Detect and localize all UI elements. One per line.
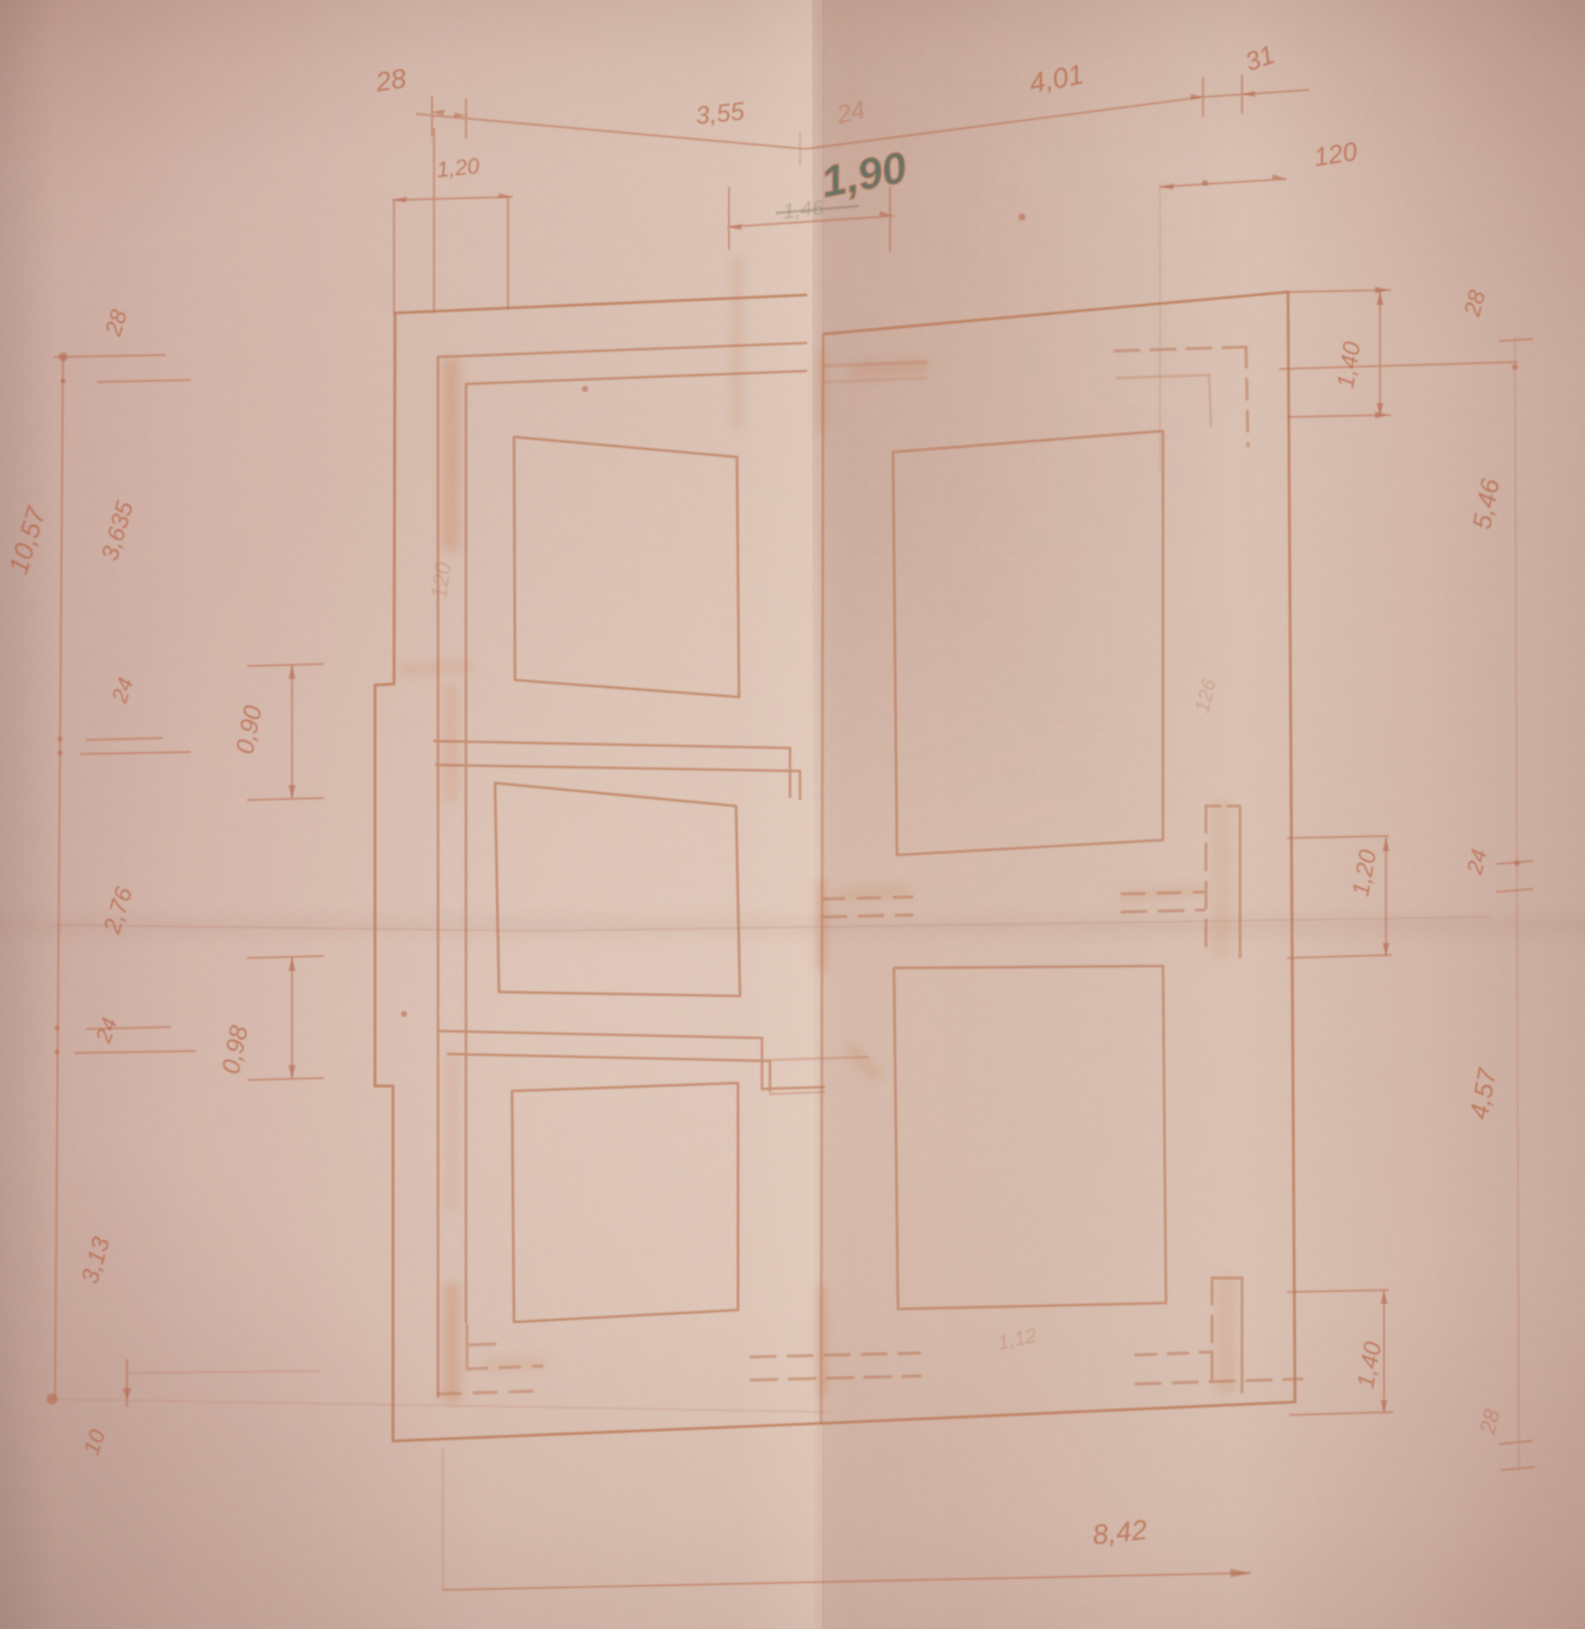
svg-text:8,42: 8,42 [1091, 1514, 1149, 1551]
svg-text:1,20: 1,20 [435, 153, 481, 182]
svg-text:28: 28 [373, 63, 408, 97]
svg-text:1,46: 1,46 [782, 196, 825, 223]
svg-text:120: 120 [426, 560, 456, 601]
svg-text:3,55: 3,55 [694, 97, 745, 130]
